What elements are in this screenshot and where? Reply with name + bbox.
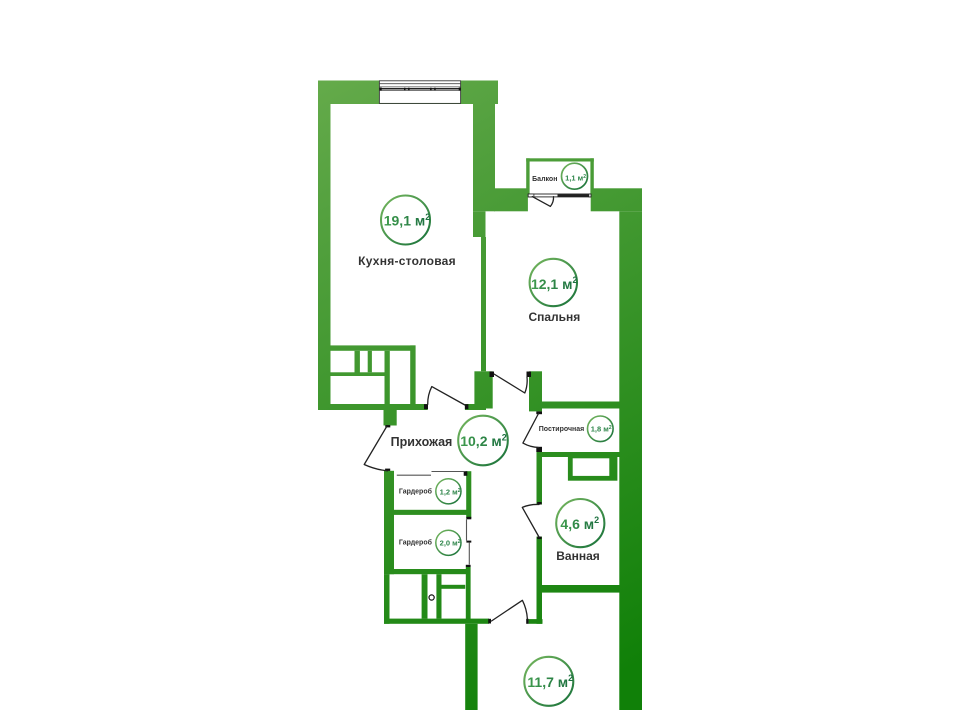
svg-text:2,0 м2: 2,0 м2 (440, 539, 461, 548)
svg-text:Балкон: Балкон (532, 176, 557, 183)
svg-text:1,2 м2: 1,2 м2 (440, 488, 461, 497)
svg-text:11,7 м2: 11,7 м2 (527, 673, 573, 690)
svg-text:19,1 м2: 19,1 м2 (384, 212, 431, 229)
svg-text:Спальня: Спальня (528, 310, 580, 324)
svg-text:Гардероб: Гардероб (399, 488, 433, 496)
svg-text:Прихожая: Прихожая (391, 435, 453, 449)
svg-text:Гардероб: Гардероб (399, 539, 433, 547)
svg-text:Постирочная: Постирочная (539, 426, 585, 433)
svg-text:12,1 м2: 12,1 м2 (531, 275, 578, 292)
svg-text:4,6 м2: 4,6 м2 (560, 515, 599, 532)
svg-text:10,2 м2: 10,2 м2 (460, 432, 507, 449)
svg-text:1,1 м2: 1,1 м2 (565, 174, 586, 183)
svg-text:Ванная: Ванная (556, 549, 600, 563)
svg-text:Кухня-столовая: Кухня-столовая (358, 254, 456, 268)
svg-text:1,8 м2: 1,8 м2 (591, 424, 612, 433)
